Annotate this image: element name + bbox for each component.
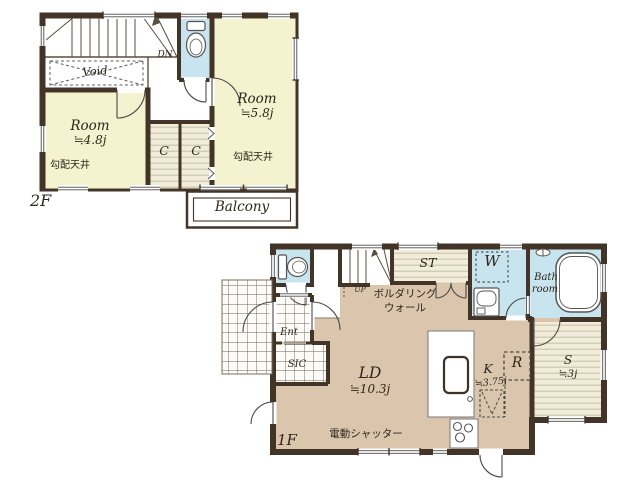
washer-label: W: [480, 254, 504, 270]
bouldering-wall-label-line1: ボルダリング: [367, 289, 443, 300]
service-room-size: ≒3j: [549, 369, 587, 380]
toilet-icon-1f: [279, 255, 308, 279]
entrance-label: Ent: [274, 328, 304, 339]
floorplan-canvas: 2F Room ≒4.8j 勾配天井 Room ≒5.8j 勾配天井 C C V…: [0, 0, 618, 480]
living-dining-size: ≒10.3j: [338, 383, 402, 396]
bathroom-label-line2: room: [527, 285, 563, 296]
floor2-label: 2F: [30, 193, 51, 210]
balcony-label: Balcony: [197, 200, 287, 214]
storage-label: ST: [408, 256, 448, 269]
room-right-size: ≒5.8j: [227, 107, 287, 120]
kitchen-name: K: [479, 362, 497, 375]
shower-icon: [536, 249, 550, 256]
living-dining-name: LD: [338, 365, 402, 381]
stairs-down-label: DN: [152, 51, 178, 60]
stove-icon: [450, 419, 478, 448]
entrance-porch-tiles: [222, 280, 272, 374]
toilet-icon-2f: [187, 22, 206, 58]
closet-b-label: C: [187, 144, 205, 157]
floor1-label: 1F: [277, 433, 297, 449]
refrigerator-label: R: [506, 356, 528, 371]
room-left-name: Room: [58, 119, 122, 133]
closet-a-label: C: [155, 144, 173, 157]
room-left-ceiling-note: 勾配天井: [50, 161, 90, 172]
bouldering-wall-label-line2: ウォール: [367, 303, 443, 314]
bathroom-label-line1: Bath: [528, 273, 564, 284]
service-room-name: S: [549, 353, 587, 366]
kitchen-counter: [428, 331, 474, 417]
washbasin-icon: [474, 288, 499, 316]
electric-shutter-label: 電動シャッター: [318, 429, 414, 440]
kitchen-sink-icon: [444, 357, 468, 393]
room-right-ceiling-note: 勾配天井: [233, 153, 273, 164]
room-left-size: ≒4.8j: [58, 134, 122, 147]
shoe-closet-label: SIC: [281, 360, 313, 371]
room-right-name: Room: [227, 92, 287, 106]
